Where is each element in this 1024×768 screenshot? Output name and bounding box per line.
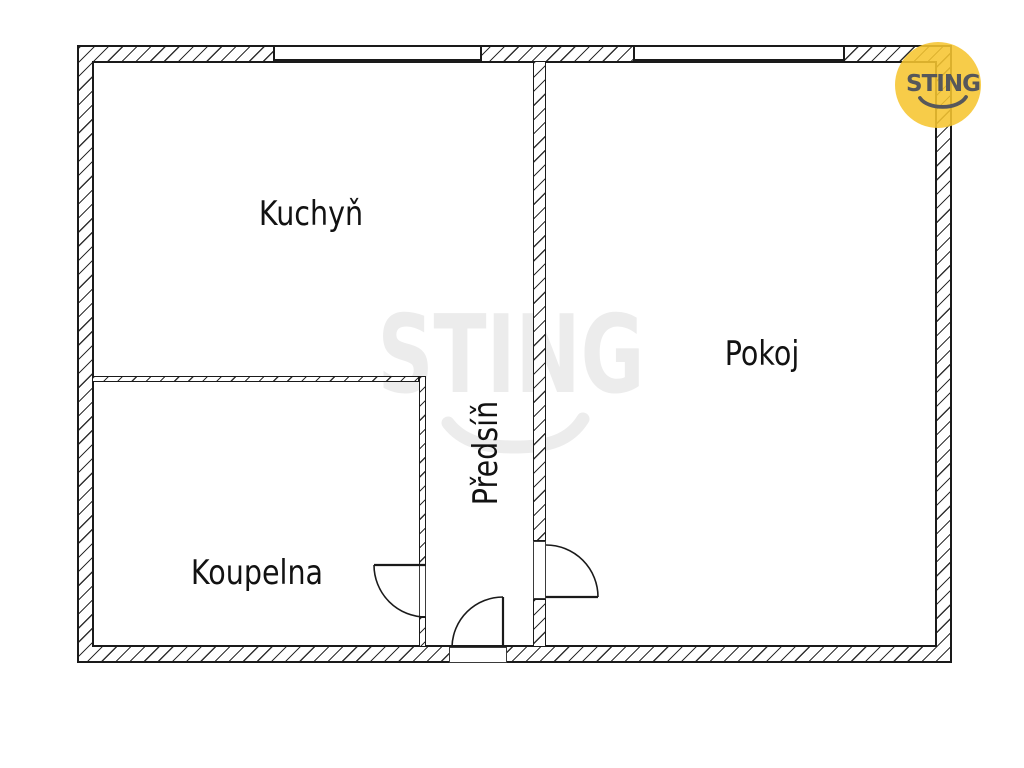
wall-pokoj-divider-upper — [533, 61, 546, 541]
watermark-text: STING — [378, 302, 645, 410]
room-label-predsin: Předsíň — [466, 401, 506, 505]
wall-koupelna-predsin-lower — [419, 617, 426, 647]
sting-logo-text: STING — [906, 71, 980, 97]
wall-koupelna-predsin-upper — [419, 376, 426, 565]
door-opening-entrance — [449, 647, 507, 663]
floorplan-canvas: STING Kuchyň Pokoj Koupelna Předsíň STIN… — [0, 0, 1024, 768]
wall-pokoj-divider-lower — [533, 599, 546, 647]
room-label-koupelna: Koupelna — [191, 553, 323, 593]
window-kuchyn — [273, 45, 482, 61]
room-label-kuchyn: Kuchyň — [259, 194, 363, 234]
window-pokoj — [633, 45, 845, 61]
wall-kuchyn-koupelna — [92, 376, 419, 382]
door-opening-koupelna — [419, 565, 426, 617]
room-label-pokoj: Pokoj — [725, 334, 800, 374]
door-opening-pokoj — [533, 541, 546, 599]
